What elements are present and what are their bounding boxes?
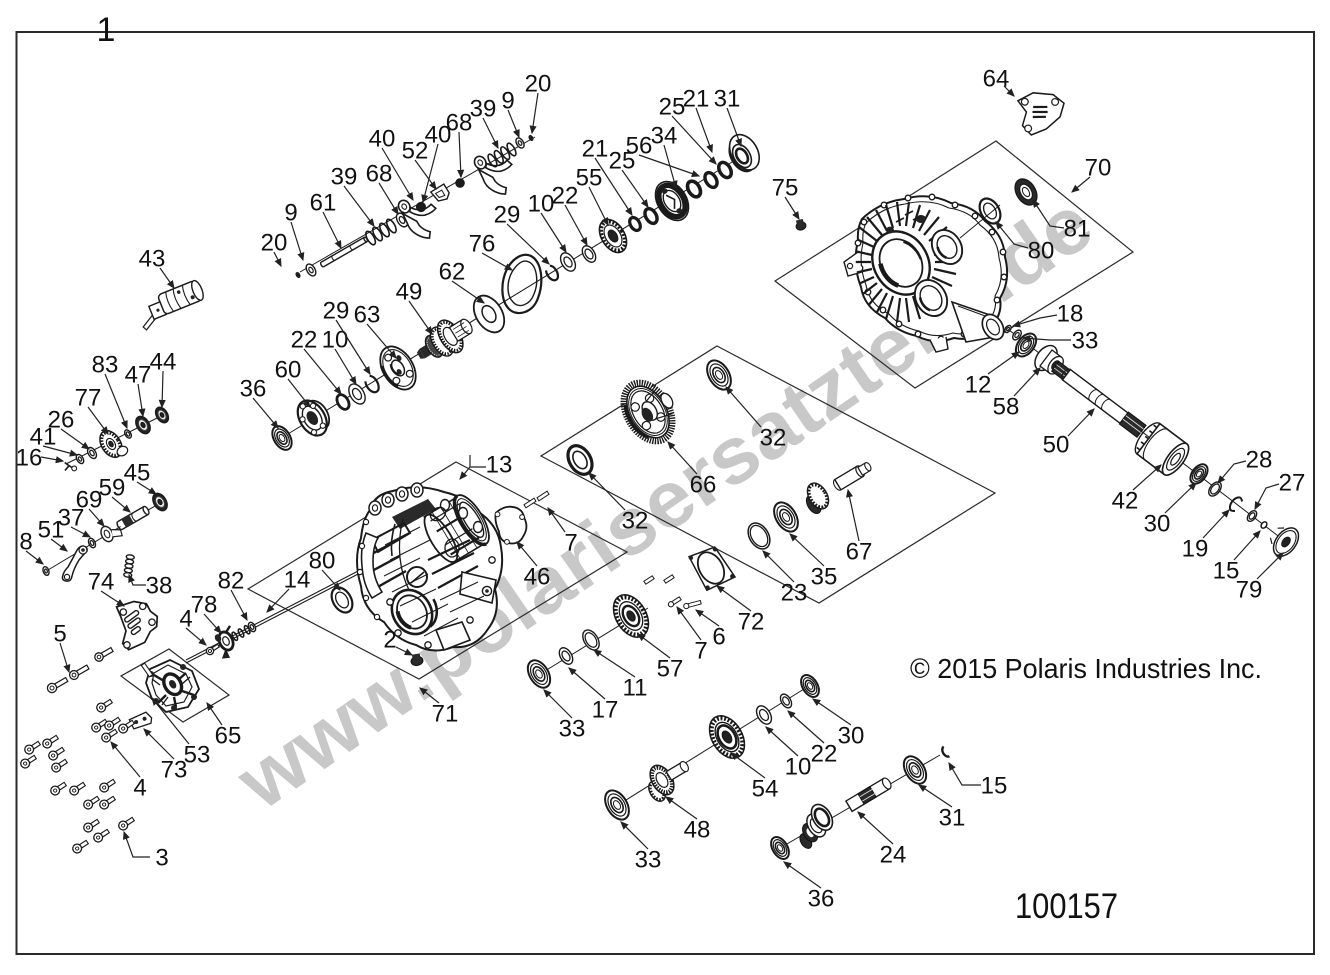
svg-text:67: 67 (846, 539, 873, 566)
svg-text:10: 10 (785, 754, 812, 781)
svg-text:7: 7 (694, 638, 707, 665)
svg-text:50: 50 (1043, 432, 1070, 459)
svg-text:7: 7 (564, 530, 577, 557)
svg-text:33: 33 (635, 847, 662, 874)
svg-text:48: 48 (684, 817, 711, 844)
svg-text:38: 38 (146, 573, 173, 600)
svg-text:53: 53 (184, 742, 211, 769)
svg-text:65: 65 (215, 723, 242, 750)
svg-text:43: 43 (139, 246, 166, 273)
svg-text:58: 58 (993, 394, 1020, 421)
svg-text:80: 80 (1028, 238, 1055, 265)
svg-text:57: 57 (657, 656, 684, 683)
svg-text:1: 1 (97, 11, 116, 49)
svg-text:30: 30 (838, 723, 865, 750)
svg-text:36: 36 (808, 886, 835, 913)
svg-text:27: 27 (1279, 470, 1306, 497)
svg-text:19: 19 (1182, 536, 1209, 563)
svg-text:© 2015 Polaris Industries Inc.: © 2015 Polaris Industries Inc. (910, 653, 1262, 684)
svg-text:32: 32 (760, 425, 787, 452)
svg-text:72: 72 (738, 609, 765, 636)
svg-text:66: 66 (690, 472, 717, 499)
svg-text:100157: 100157 (1015, 887, 1118, 926)
svg-text:32: 32 (622, 508, 649, 535)
svg-text:11: 11 (623, 675, 648, 702)
svg-text:24: 24 (880, 842, 907, 869)
svg-text:64: 64 (983, 66, 1010, 93)
svg-text:79: 79 (1236, 577, 1263, 604)
svg-text:46: 46 (524, 564, 551, 591)
svg-text:31: 31 (939, 805, 966, 832)
svg-text:2: 2 (383, 627, 396, 654)
svg-text:13: 13 (486, 452, 513, 479)
svg-text:33: 33 (1072, 328, 1099, 355)
svg-text:28: 28 (1246, 447, 1273, 474)
svg-text:22: 22 (811, 741, 838, 768)
svg-text:16: 16 (16, 445, 43, 472)
svg-text:4: 4 (133, 775, 146, 802)
svg-text:73: 73 (161, 757, 188, 784)
svg-text:18: 18 (1057, 301, 1084, 328)
svg-text:81: 81 (1064, 216, 1091, 243)
svg-text:54: 54 (752, 776, 779, 803)
svg-text:23: 23 (781, 580, 808, 607)
svg-text:33: 33 (559, 716, 586, 743)
svg-text:12: 12 (965, 372, 992, 399)
svg-text:30: 30 (1144, 511, 1171, 538)
svg-text:42: 42 (1112, 488, 1139, 515)
svg-text:35: 35 (811, 564, 838, 591)
svg-text:17: 17 (592, 697, 619, 724)
svg-text:6: 6 (712, 624, 725, 651)
svg-text:3: 3 (155, 845, 168, 872)
svg-text:71: 71 (432, 701, 459, 728)
svg-text:15: 15 (981, 773, 1008, 800)
